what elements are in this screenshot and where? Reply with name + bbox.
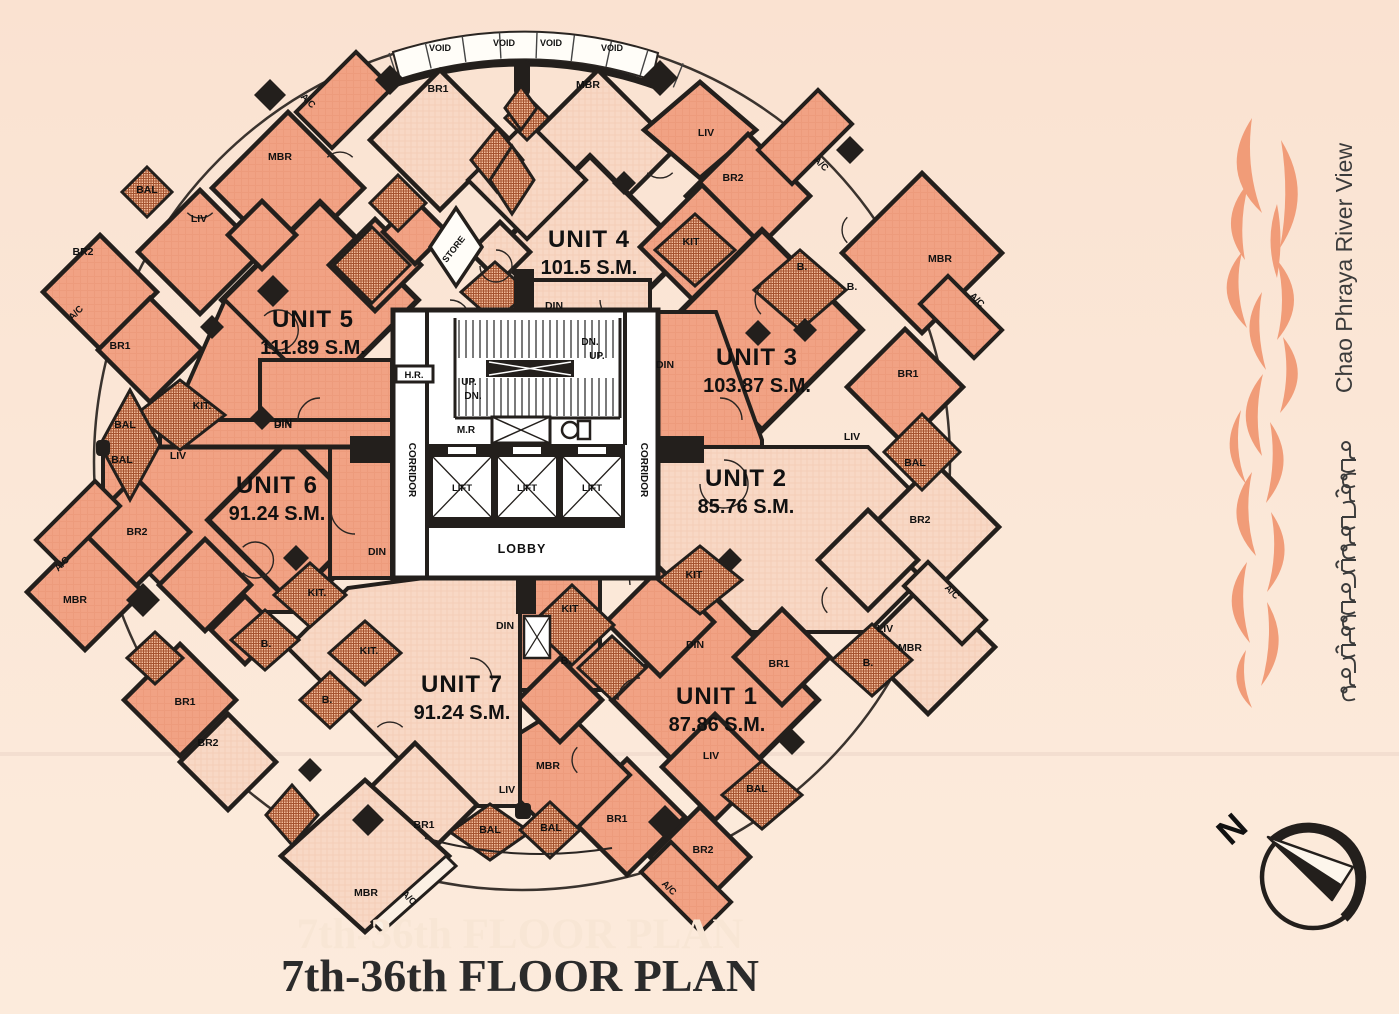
svg-text:103.87 S.M.: 103.87 S.M. — [703, 375, 811, 397]
svg-text:BAL: BAL — [479, 824, 501, 836]
svg-text:BR1: BR1 — [109, 340, 130, 352]
svg-text:DN.: DN. — [464, 391, 481, 402]
svg-text:BR1: BR1 — [606, 813, 627, 825]
svg-text:VOID: VOID — [429, 43, 452, 53]
svg-text:UNIT 7: UNIT 7 — [421, 671, 503, 698]
svg-text:B.: B. — [322, 694, 333, 706]
svg-text:DIN: DIN — [686, 639, 704, 651]
svg-text:LIFT: LIFT — [452, 483, 472, 494]
svg-text:LIV: LIV — [698, 127, 714, 139]
svg-text:91.24 S.M.: 91.24 S.M. — [414, 702, 511, 724]
svg-text:B.: B. — [261, 638, 272, 650]
svg-text:BAL: BAL — [114, 419, 136, 431]
svg-text:UNIT 4: UNIT 4 — [548, 226, 630, 253]
svg-text:LIV: LIV — [170, 450, 186, 462]
svg-text:LIFT: LIFT — [582, 483, 602, 494]
svg-text:UNIT 3: UNIT 3 — [716, 344, 798, 371]
svg-text:VOID: VOID — [493, 38, 516, 48]
svg-text:UNIT 1: UNIT 1 — [676, 683, 758, 710]
svg-text:B.: B. — [863, 657, 874, 669]
svg-text:KIT.: KIT. — [360, 645, 379, 657]
svg-text:85.76 S.M.: 85.76 S.M. — [698, 496, 795, 518]
svg-text:DN.: DN. — [581, 337, 598, 348]
svg-text:KIT.: KIT. — [308, 587, 327, 599]
svg-text:101.5 S.M.: 101.5 S.M. — [541, 257, 638, 279]
svg-text:BR1: BR1 — [174, 696, 195, 708]
svg-text:UNIT 5: UNIT 5 — [272, 306, 354, 333]
svg-text:LIFT: LIFT — [517, 483, 537, 494]
svg-text:B.: B. — [797, 261, 808, 273]
svg-text:B.: B. — [847, 281, 858, 293]
svg-text:MBR: MBR — [354, 887, 378, 899]
svg-text:LIV: LIV — [191, 213, 207, 225]
svg-text:BAL: BAL — [540, 822, 562, 834]
svg-text:BAL: BAL — [904, 457, 926, 469]
svg-text:DIN: DIN — [496, 620, 514, 632]
svg-text:91.24 S.M.: 91.24 S.M. — [229, 503, 326, 525]
svg-text:CORRIDOR: CORRIDOR — [406, 443, 417, 498]
svg-text:BR1: BR1 — [897, 368, 918, 380]
svg-text:MBR: MBR — [576, 79, 600, 91]
svg-text:BAL: BAL — [746, 783, 768, 795]
svg-text:UNIT 6: UNIT 6 — [236, 472, 318, 499]
svg-text:LIV: LIV — [844, 431, 860, 443]
svg-text:KIT: KIT — [683, 236, 701, 248]
svg-text:MBR: MBR — [928, 253, 952, 265]
svg-text:BR1: BR1 — [768, 658, 789, 670]
svg-text:BR2: BR2 — [197, 737, 218, 749]
svg-text:BAL: BAL — [111, 454, 133, 466]
svg-text:BR1: BR1 — [413, 819, 434, 831]
svg-text:LIV: LIV — [877, 623, 893, 635]
svg-text:BR2: BR2 — [722, 172, 743, 184]
svg-text:CORRIDOR: CORRIDOR — [638, 443, 649, 498]
svg-text:DIN: DIN — [368, 546, 386, 558]
svg-text:87.86 S.M.: 87.86 S.M. — [669, 714, 766, 736]
svg-text:M.R: M.R — [457, 425, 476, 436]
svg-text:DIN: DIN — [656, 359, 674, 371]
svg-text:111.89 S.M.: 111.89 S.M. — [260, 337, 366, 359]
svg-text:DIN: DIN — [545, 300, 563, 312]
svg-text:KIT: KIT — [686, 569, 704, 581]
svg-text:LIV: LIV — [499, 784, 515, 796]
svg-text:UNIT 2: UNIT 2 — [705, 465, 787, 492]
svg-text:MBR: MBR — [536, 760, 560, 772]
svg-text:VOID: VOID — [601, 43, 624, 53]
svg-text:UP.: UP. — [461, 377, 477, 388]
svg-text:UP.: UP. — [589, 351, 605, 362]
svg-text:BR2: BR2 — [72, 246, 93, 258]
svg-text:MBR: MBR — [63, 594, 87, 606]
svg-text:BR2: BR2 — [692, 844, 713, 856]
svg-text:LOBBY: LOBBY — [498, 542, 547, 556]
svg-text:LIV: LIV — [703, 750, 719, 762]
svg-text:BR2: BR2 — [126, 526, 147, 538]
svg-text:7th-36th FLOOR PLAN: 7th-36th FLOOR PLAN — [281, 950, 759, 1001]
svg-text:BR1: BR1 — [427, 83, 448, 95]
svg-text:Chao Phraya River View: Chao Phraya River View — [1331, 143, 1357, 394]
svg-text:B.: B. — [561, 655, 572, 667]
svg-text:KIT.: KIT. — [193, 400, 212, 412]
svg-text:BR2: BR2 — [909, 514, 930, 526]
svg-text:VOID: VOID — [540, 38, 563, 48]
svg-text:MBR: MBR — [898, 642, 922, 654]
svg-text:BAL: BAL — [136, 184, 158, 196]
svg-text:DIN: DIN — [274, 417, 292, 429]
svg-text:H.R.: H.R. — [405, 370, 424, 381]
svg-text:MBR: MBR — [268, 151, 292, 163]
svg-text:KIT: KIT — [562, 603, 580, 615]
